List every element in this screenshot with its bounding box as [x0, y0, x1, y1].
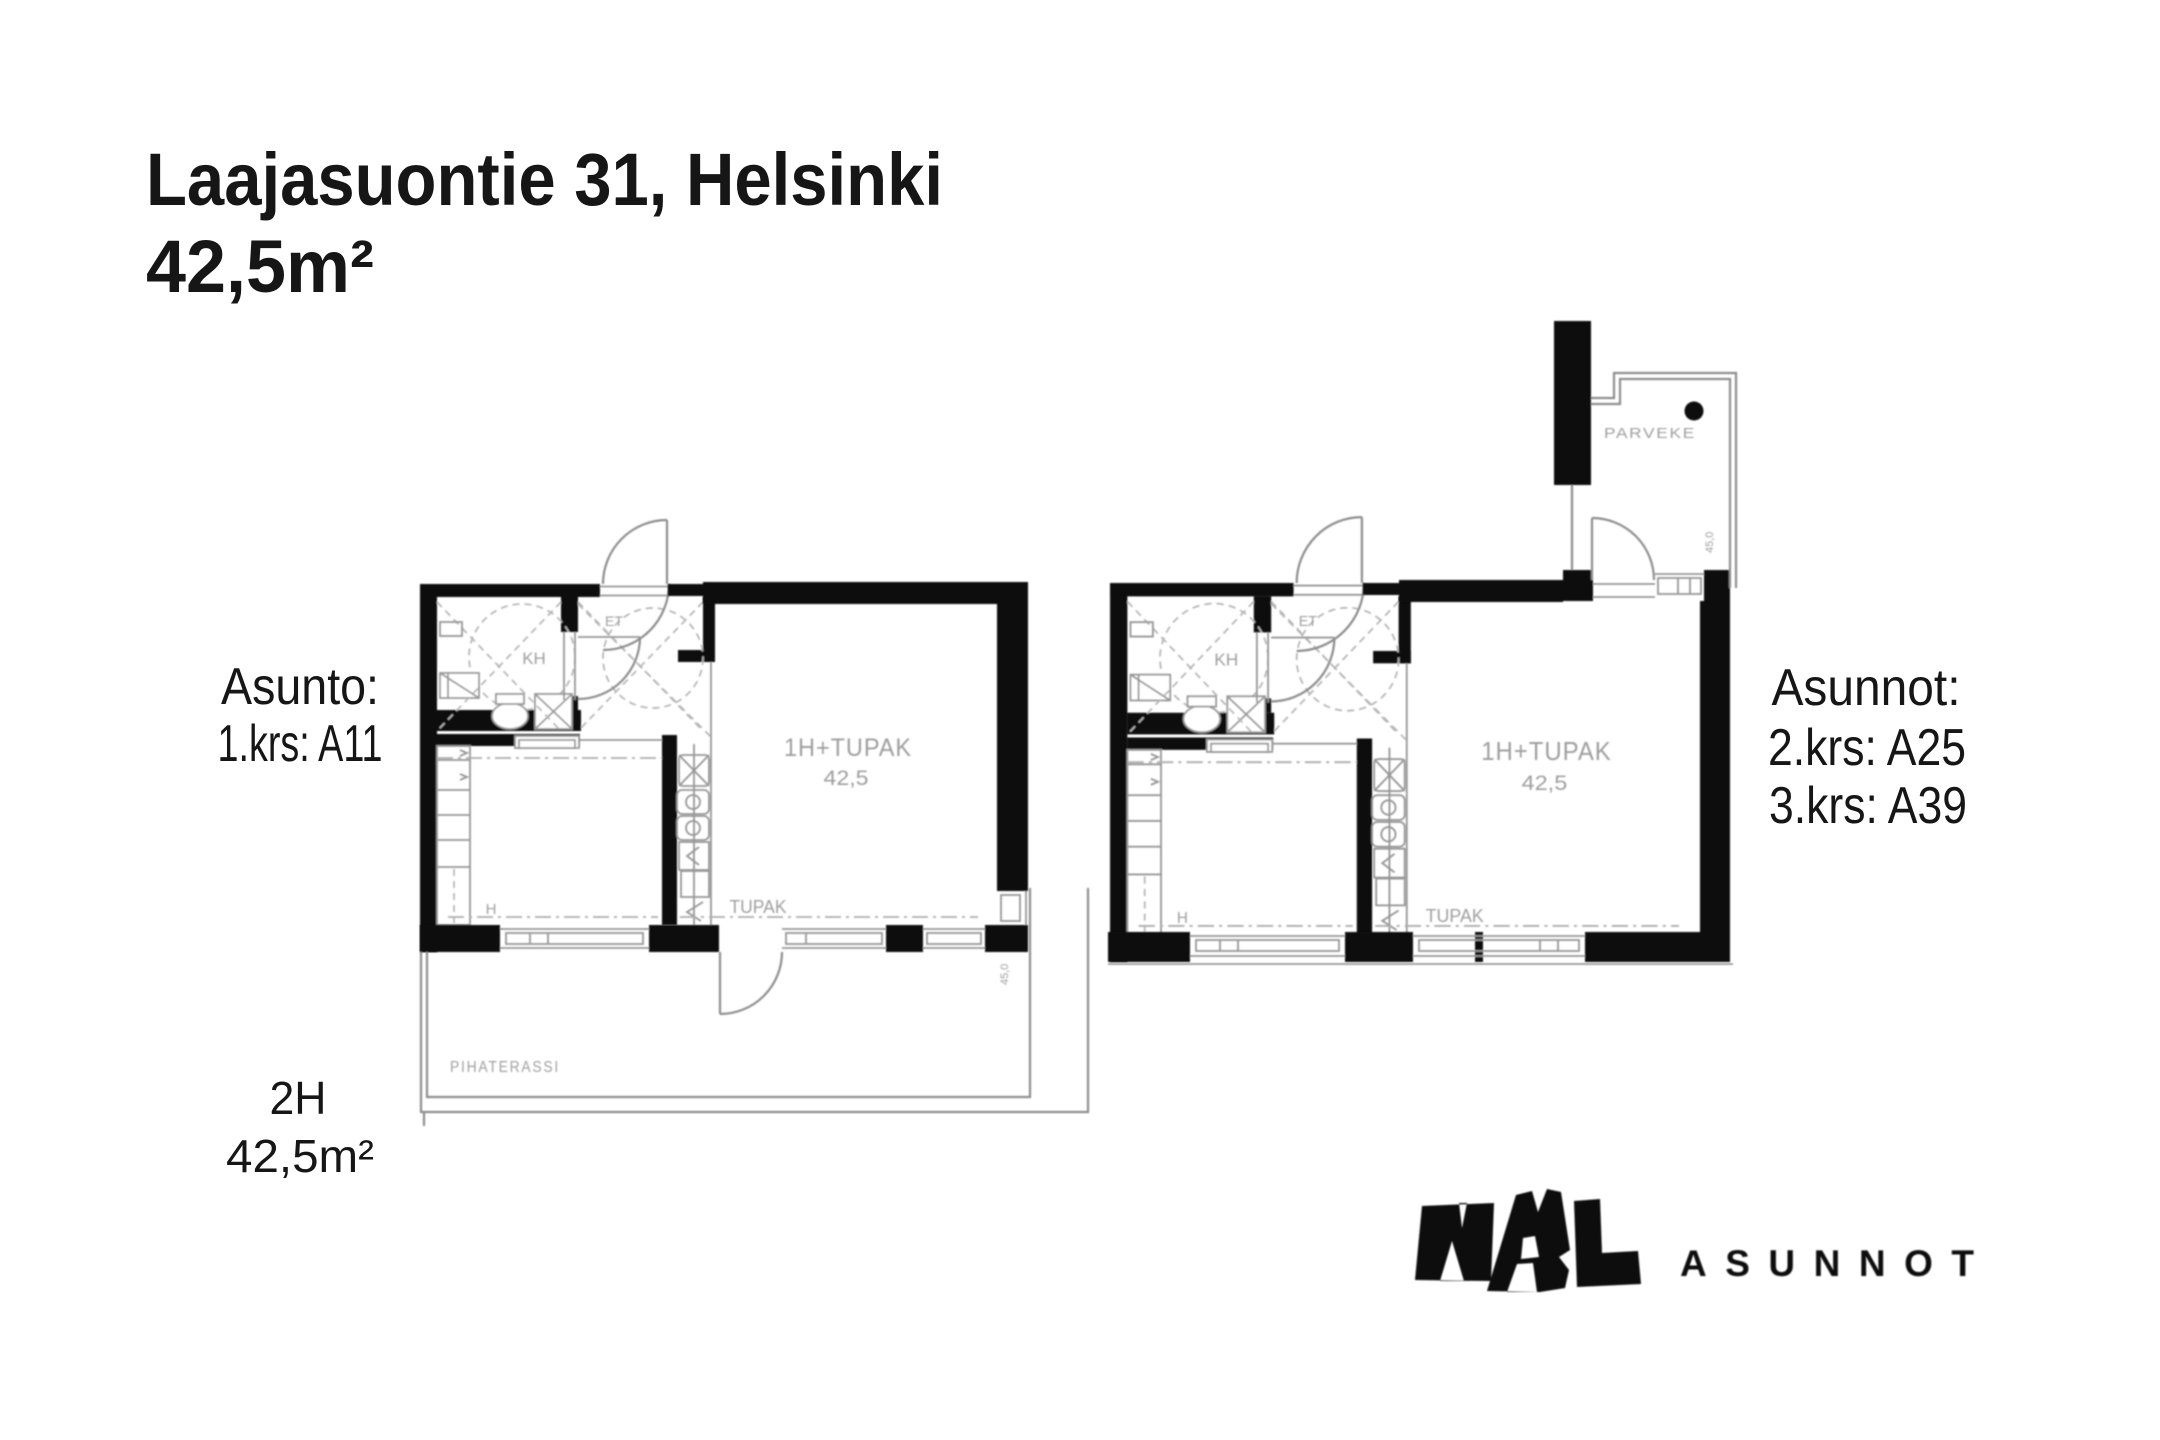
svg-text:2.krs: A25: 2.krs: A25 — [1768, 719, 1966, 777]
svg-text:3.krs: A39: 3.krs: A39 — [1769, 777, 1967, 835]
svg-text:Laajasuontie 31, Helsinki: Laajasuontie 31, Helsinki — [146, 138, 943, 221]
svg-text:Asunto:: Asunto: — [221, 658, 379, 716]
svg-text:PIHATERASSI: PIHATERASSI — [450, 1059, 560, 1076]
svg-text:PARVEKE: PARVEKE — [1604, 425, 1696, 442]
svg-text:42,5m²: 42,5m² — [226, 1130, 374, 1182]
svg-text:1.krs: A11: 1.krs: A11 — [218, 715, 383, 773]
svg-text:45,0: 45,0 — [1704, 532, 1716, 553]
svg-text:42,5m²: 42,5m² — [146, 225, 374, 308]
svg-text:ASUNNOT: ASUNNOT — [1680, 1243, 1974, 1284]
svg-text:Asunnot:: Asunnot: — [1772, 659, 1961, 717]
svg-text:45,0: 45,0 — [999, 964, 1011, 985]
svg-text:2H: 2H — [270, 1072, 327, 1124]
